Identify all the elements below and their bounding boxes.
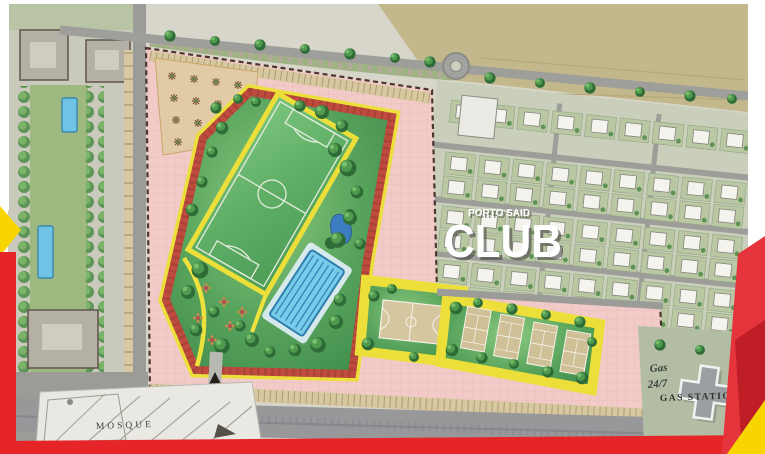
mosque-label: MOSQUE <box>96 420 154 432</box>
parking-strip <box>124 50 133 390</box>
site-plan-image: Gas 24/7 GAS STATION MOSQUE PORTO SAID P… <box>0 0 765 454</box>
margin-left <box>0 0 9 210</box>
clubhouse-building <box>458 95 498 139</box>
apartment-building <box>20 30 68 80</box>
apartment-building <box>86 40 130 82</box>
mosque-area: MOSQUE <box>36 382 262 446</box>
brand-line2: CLUB <box>444 215 562 267</box>
north-green-band <box>8 4 140 30</box>
apartment-building <box>28 310 98 368</box>
basketball-court <box>379 300 443 344</box>
residential-pool <box>38 226 53 278</box>
margin-right <box>748 0 765 250</box>
accent-strip-left <box>0 252 16 454</box>
master-plan: Gas 24/7 GAS STATION MOSQUE PORTO SAID P… <box>0 0 765 454</box>
residential-pool <box>62 98 77 132</box>
minaret <box>67 399 73 405</box>
mosque-plot <box>36 382 262 446</box>
gas-hours-label: 24/7 <box>646 378 668 391</box>
brand-logo: PORTO SAID PORTO SAID CLUB CLUB <box>444 208 565 270</box>
gas-word-label: Gas <box>649 362 668 375</box>
roundabout-island <box>451 61 462 72</box>
margin-top <box>0 0 765 4</box>
site-plan: Gas 24/7 GAS STATION MOSQUE <box>8 4 765 454</box>
